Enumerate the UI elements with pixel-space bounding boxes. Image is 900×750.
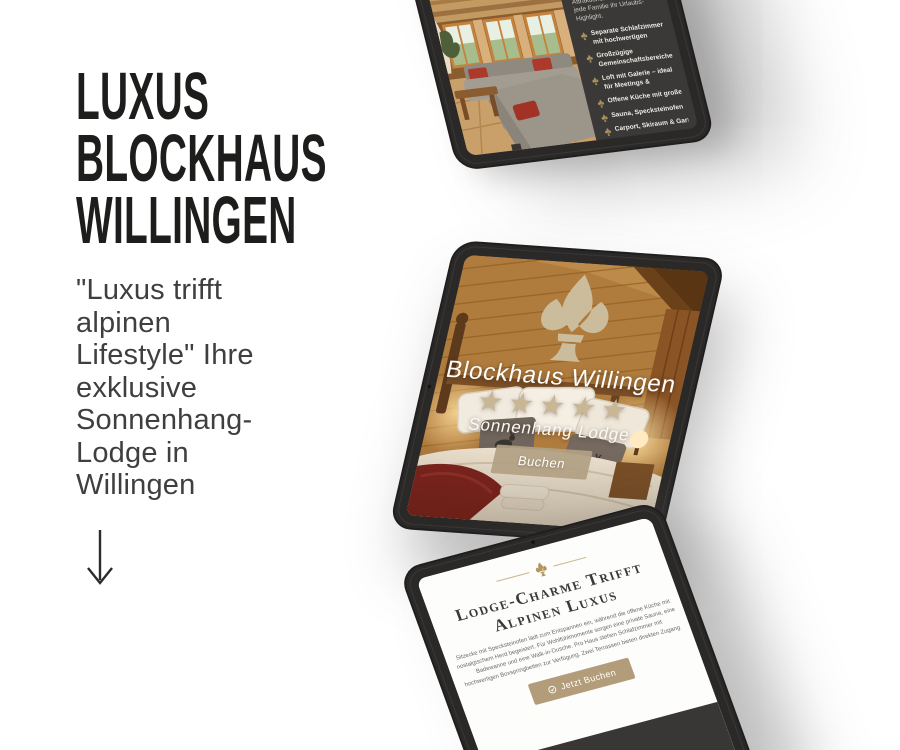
camera-dot [530,540,535,545]
tablet-bottom-screen: Lodge-Charme Trifft Alpinen Luxus Sitzec… [416,517,788,750]
tablet-bottom: Lodge-Charme Trifft Alpinen Luxus Sitzec… [398,500,806,750]
title-line-2: BLOCKHAUS [76,128,250,190]
fleur-de-lis-icon [600,114,609,123]
fleur-de-lis-icon [532,561,550,579]
fleur-de-lis-icon [603,128,612,137]
jetzt-buchen-label: Jetzt Buchen [559,667,617,691]
divider-line [496,572,529,582]
fleur-de-lis-icon [585,54,594,63]
tablet-middle: Blockhaus Willingen ★★★★★ Sonnenhang Lod… [388,240,726,547]
amenity-intro: Von actionreichen Attraktionen bis zu je… [569,0,662,24]
fleur-de-lis-icon [596,99,605,108]
fleur-de-lis-logo-icon [524,270,625,366]
page-title: LUXUS BLOCKHAUS WILLINGEN [76,66,250,252]
fleur-de-lis-icon [580,32,589,41]
down-arrow-icon [84,528,116,590]
buchen-button[interactable]: Buchen [491,444,592,479]
tablet-top-screen: Von actionreichen Attraktionen bis zu je… [370,0,698,156]
camera-dot [427,384,432,388]
title-line-3: WILLINGEN [76,190,250,252]
tablet-top: Von actionreichen Attraktionen bis zu je… [353,0,716,171]
tablet-middle-screen: Blockhaus Willingen ★★★★★ Sonnenhang Lod… [406,255,710,532]
quote-text: "Luxus trifft alpinen Lifestyle" Ihre ex… [76,274,288,502]
title-line-1: LUXUS [76,66,250,128]
mockup-canvas: LUXUS BLOCKHAUS WILLINGEN "Luxus trifft … [0,0,900,750]
booking-icon [546,684,558,695]
divider-line [553,557,586,567]
hero-overlay: Blockhaus Willingen ★★★★★ Sonnenhang Lod… [406,255,710,532]
fleur-de-lis-icon [591,77,600,86]
left-panel: LUXUS BLOCKHAUS WILLINGEN "Luxus trifft … [76,66,376,252]
